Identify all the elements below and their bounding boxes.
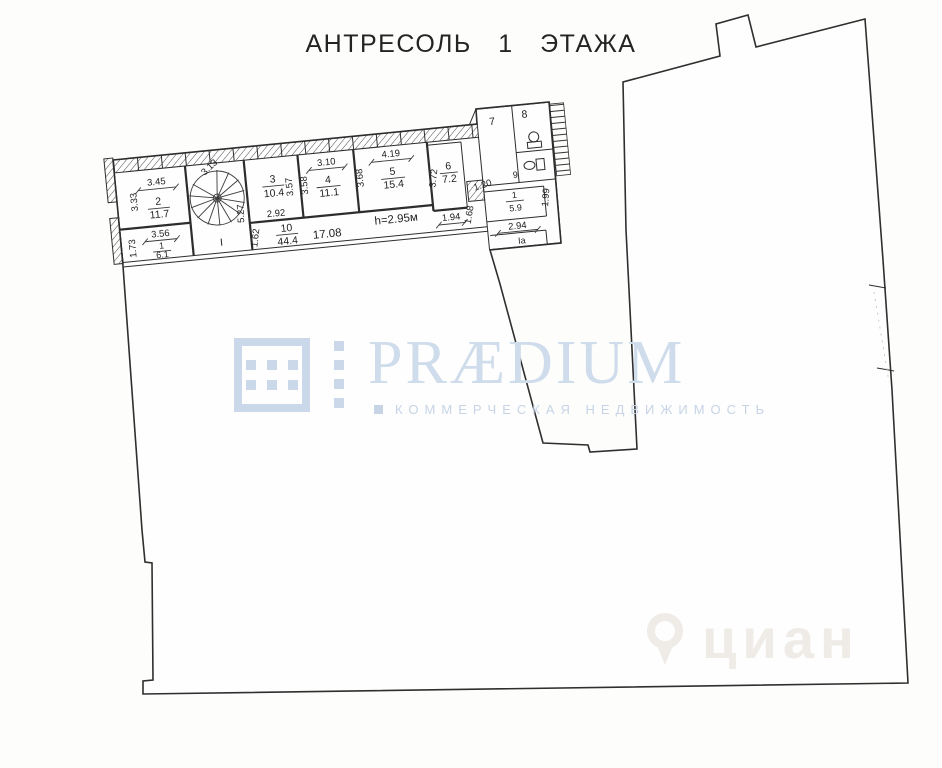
praedium-watermark: PRÆDIUM КОММЕРЧЕСКАЯ НЕДВИЖИМОСТЬ <box>234 338 770 417</box>
dim-3-57: 3.57 <box>284 177 297 196</box>
praedium-text-block: PRÆDIUM КОММЕРЧЕСКАЯ НЕДВИЖИМОСТЬ <box>368 332 770 417</box>
room-9-number: 9 <box>512 170 518 180</box>
dim-5-27: 5.27 <box>235 204 247 223</box>
room-5-area: 15.4 <box>383 178 405 192</box>
dim-3-56: 3.56 <box>151 228 170 241</box>
tagline-bullet <box>374 405 383 414</box>
dim-4-19: 4.19 <box>381 148 400 161</box>
room-10-number: 10 <box>280 222 293 235</box>
room-4-area: 11.1 <box>319 186 340 200</box>
page-title: АНТРЕСОЛЬ 1 ЭТАЖА <box>0 30 942 59</box>
dim-1-73: 1.73 <box>127 239 140 258</box>
location-pin-icon <box>642 609 688 669</box>
brand-text: PRÆDIUM <box>368 332 770 394</box>
room-1r-area: 5.9 <box>509 202 522 213</box>
praedium-logo-dots <box>334 341 344 408</box>
dim-1-62: 1.62 <box>249 228 262 248</box>
dim-2-94: 2.94 <box>508 220 527 233</box>
room-10-area: 44.4 <box>277 234 299 248</box>
dim-1-99: 1.99 <box>540 188 552 207</box>
dim-3-58: 3.58 <box>299 176 312 195</box>
tagline-text: КОММЕРЧЕСКАЯ НЕДВИЖИМОСТЬ <box>395 402 770 417</box>
cian-watermark: циан <box>642 606 860 671</box>
room-1r-number: 1 <box>511 190 517 200</box>
dim-3-45: 3.45 <box>147 176 166 189</box>
room-6-area: 7.2 <box>442 173 458 186</box>
dim-3-10: 3.10 <box>317 156 336 169</box>
dim-3-68: 3.68 <box>354 168 367 187</box>
room-1l-area: 6.1 <box>156 249 169 260</box>
room-2-area: 11.7 <box>149 208 170 222</box>
room-1a-label: Iа <box>518 235 526 246</box>
room-3-area: 10.4 <box>263 186 285 200</box>
dim-2-92: 2.92 <box>266 207 285 220</box>
cian-text: циан <box>702 606 860 671</box>
dim-3-33: 3.33 <box>128 192 141 211</box>
dim-3-72: 3.72 <box>427 168 440 188</box>
floor-plan-page: АНТРЕСОЛЬ 1 ЭТАЖА <box>0 0 942 768</box>
praedium-logo-icon <box>234 338 310 412</box>
dim-1-94: 1.94 <box>442 211 461 224</box>
